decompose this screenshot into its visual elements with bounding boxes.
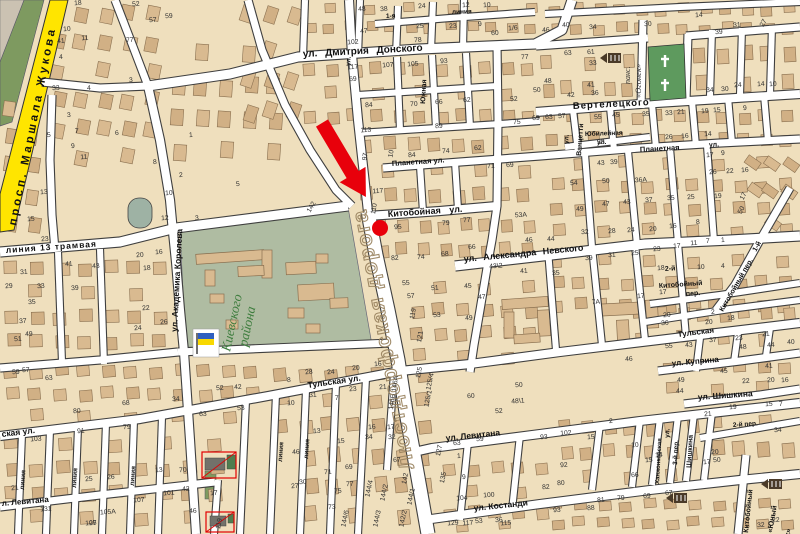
house-number: 10 [287,400,295,408]
building [273,368,287,382]
building [782,74,794,89]
house-number: 35 [552,270,560,278]
street-label: Юбилейная [585,129,623,138]
house-number: 31 [20,269,28,277]
house-number: 43 [685,342,693,350]
house-number: 17 [210,490,218,498]
house-number: 20 [705,319,713,327]
house-number: 44 [676,388,684,396]
building [196,364,209,376]
building [522,280,535,292]
house-number: 117 [372,188,384,196]
building [77,336,90,349]
house-number: 102 [347,39,359,47]
building [600,302,643,316]
map-canvas[interactable]: Люстдорфская дорогапросп. Маршала Жукова… [0,0,800,534]
house-number: 40 [787,339,795,347]
road[interactable] [432,55,436,128]
road[interactable] [692,101,696,146]
building [84,461,98,474]
building [689,500,702,510]
road[interactable] [46,430,50,534]
road[interactable] [100,249,104,364]
building [108,440,122,453]
building [31,312,44,325]
site-building [227,455,236,469]
house-number: 3 [195,215,199,222]
street-label: пер. [686,290,701,298]
house-number: 27 [89,520,97,528]
house-number: 20 [767,377,775,385]
building [427,138,440,151]
house-number: 17 [659,289,667,297]
house-number: 1/6 [508,25,518,33]
road[interactable] [102,423,106,534]
house-number: 33 [589,60,597,68]
building [330,298,348,309]
building [369,61,381,73]
house-number: 21 [379,384,387,392]
house-number: 18 [143,265,151,273]
building [364,5,375,15]
house-number: 52 [132,1,140,9]
building [428,190,441,203]
house-number: 43 [623,199,631,207]
building [122,121,137,137]
house-number: 101 [163,490,175,498]
house-number: 40 [562,22,570,30]
house-number: 67 [393,457,401,465]
house-number: 74 [442,148,450,156]
building [667,520,680,530]
house-number: 19 [701,108,709,116]
street-label: линия [19,470,27,490]
house-number: 12 [161,215,169,223]
house-number: 9 [721,150,725,157]
house-number: 36 [495,517,503,525]
building [199,390,212,402]
house-number: 38 [380,6,388,14]
house-number: 15 [765,401,773,409]
house-number: 17 [637,293,645,301]
building [546,134,558,146]
house-number: 42 [567,92,575,100]
location-marker-dot[interactable] [372,220,388,236]
building [223,411,236,423]
house-number: 49 [25,331,33,339]
road[interactable] [652,104,656,148]
house-number: 13 [313,428,321,436]
house-number: 23 [349,386,357,394]
house-number: 15 [645,457,653,465]
house-number: 25 [416,23,424,31]
house-number: 25 [687,194,695,202]
building [518,165,531,178]
house-number: 32 [388,434,396,442]
building [29,464,43,477]
building [597,517,610,527]
building [472,187,485,200]
house-number: 68 [441,251,449,259]
building [552,178,565,190]
building [100,8,115,24]
road[interactable] [58,252,62,362]
house-number: 45 [720,368,728,376]
house-number: 48 [544,78,552,86]
house-number: 18 [727,315,735,323]
house-number: 8 [696,219,700,226]
house-number: 10 [387,149,395,158]
house-number: 21 [704,411,712,419]
house-number: 46 [542,27,550,35]
road[interactable] [696,338,700,371]
building [74,7,89,23]
building [152,334,165,347]
street-label: панс. [623,66,632,84]
house-number: 104 [456,495,468,503]
house-number: 36 [591,90,599,98]
house-number: 14 [655,452,663,460]
house-number: 105А [100,508,117,516]
building [196,110,210,127]
building [603,444,615,457]
house-number: 49 [465,315,473,323]
house-number: 91 [77,428,85,436]
house-number: 107 [382,62,394,70]
building [372,449,385,465]
building [298,283,335,301]
building [105,260,118,273]
house-number: 50 [713,457,721,465]
building [524,24,535,34]
house-number: 70 [179,467,187,475]
building [5,311,18,324]
building [784,308,796,321]
house-number: 36А [635,177,648,185]
building [96,61,111,77]
building [778,363,791,374]
house-number: 46 [189,508,197,516]
house-number: 26 [709,169,717,177]
house-number: 48 [739,344,747,352]
house-number: 43 [597,160,605,168]
building [25,189,38,205]
house-number: 13 [40,189,48,197]
house-number: 63 [453,440,461,448]
building [616,21,627,31]
house-number: 57 [407,293,415,301]
house-number: 34 [365,434,373,442]
building [238,265,264,276]
building [713,501,726,511]
house-number: 102 [560,430,572,438]
building [134,513,148,526]
building [782,443,795,458]
building [316,254,328,263]
building [604,82,615,96]
house-number: 36 [661,320,669,328]
house-number: 15 [713,107,721,115]
building [735,181,748,193]
building [195,44,209,61]
building [456,303,469,315]
house-number: 62 [474,145,482,153]
house-number: 60 [491,30,499,38]
house-number: 41 [65,261,73,269]
house-number: 57 [22,367,30,375]
building [207,439,221,452]
road[interactable] [764,95,768,141]
house-number: 33 [665,110,673,118]
house-number: 32 [757,522,765,530]
house-number: 26 [160,319,168,327]
house-number: 84 [408,152,416,160]
road[interactable] [420,166,423,212]
house-number: 33 [37,283,45,291]
building [383,136,396,149]
building [30,408,43,420]
house-number: 46 [292,449,300,457]
house-number: 20 [711,449,719,457]
house-number: 9 [743,105,747,112]
house-number: 73 [328,504,336,512]
house-number: 35 [642,111,650,119]
house-number: 49 [677,377,685,385]
house-number: 63 [564,50,572,58]
road[interactable] [158,417,162,534]
building [535,463,548,475]
house-number: 44 [767,342,775,350]
house-number: 49 [576,206,584,214]
house-number: 2 [609,418,613,425]
house-number: 71 [487,163,495,171]
road[interactable] [728,97,732,143]
map-screenshot: Люстдорфская дорогапросп. Маршала Жукова… [0,0,800,534]
house-number: 16 [368,424,376,432]
house-number: 55 [402,280,410,288]
house-number: 93 [440,58,448,66]
house-number: 75 [334,488,342,496]
house-number: 77 [463,217,471,225]
house-number: 39 [71,285,79,293]
building [478,219,490,232]
house-number: 78 [414,37,422,45]
house-number: 47 [478,294,486,302]
street-label: линия [129,466,137,486]
house-number: 43 [92,263,100,271]
building [127,261,140,274]
house-number: 8 [153,159,157,166]
house-number: 25 [85,476,93,484]
house-number: 74 [417,254,425,262]
house-number: 2 [179,172,183,179]
house-number: 53 [433,312,441,320]
road[interactable] [466,53,470,127]
building [520,137,533,150]
building [205,270,215,286]
house-number: 30 [644,21,652,29]
house-number: 16 [155,249,163,257]
house-number: 1 [721,237,725,244]
building [395,242,407,255]
house-number: 27 [291,483,299,491]
road[interactable] [397,57,400,130]
house-number: 88 [587,505,595,513]
house-number: 24 [327,369,335,377]
house-number: 84 [365,102,373,110]
building [130,288,143,301]
house-number: 15 [337,438,345,446]
building [126,387,139,399]
house-number: 77 [126,37,134,45]
building [685,179,698,191]
house-number: 10 [631,442,639,450]
building [210,294,224,303]
house-number: 52 [216,385,224,393]
building [144,37,159,53]
house-number: 34 [706,87,714,95]
street-label: линия [452,8,472,16]
house-number: 23 [449,23,457,31]
building [543,84,554,98]
house-number: 30 [721,86,729,94]
building [102,365,115,377]
house-number: 69 [643,493,651,501]
building [619,502,632,512]
road[interactable] [686,34,688,100]
house-number: 13 [155,467,163,475]
house-number: 30 [299,479,307,487]
house-number: 5 [236,181,240,188]
house-number: 26 [107,474,115,482]
house-number: 15 [587,434,595,442]
building [413,348,426,360]
house-number: 31 [733,22,741,30]
street-label: ул. [664,428,671,438]
house-number: 105 [407,61,419,69]
flag-icon [198,339,214,345]
house-number: 1 [189,132,193,139]
house-number: 63 [199,411,207,419]
house-number: 24 [627,227,635,235]
house-number: 23 [653,246,661,254]
house-number: 22 [142,305,150,313]
building [521,63,533,75]
house-number: 41 [587,82,595,90]
house-number: 20 [136,252,144,260]
house-number: 4 [721,263,725,270]
house-number: 8 [287,377,291,384]
house-number: 18 [74,0,82,7]
house-number: 11 [690,240,698,247]
house-number: 28 [305,369,313,377]
house-number: 69 [349,76,357,84]
house-number: 48\1 [511,398,525,406]
house-number: 63 [45,375,53,383]
building [325,86,337,98]
house-number: 16 [781,377,789,385]
house-number: 50 [533,87,541,95]
house-number: 71 [324,469,332,477]
house-number: 92 [560,462,568,470]
building [622,518,635,528]
house-number: 44 [547,236,555,244]
building [784,47,796,62]
building [30,262,43,275]
building [621,83,632,97]
building [120,147,135,163]
building [658,23,669,33]
house-number: 15 [27,216,35,224]
building [575,297,588,309]
house-number: 47 [360,28,368,36]
building [79,390,92,402]
building [56,460,70,473]
building [220,141,234,158]
house-number: 23 [41,236,49,244]
house-number: 17 [387,424,395,432]
house-number: 10 [63,26,71,34]
building [217,111,231,128]
building [73,92,88,108]
house-number: 59 [12,369,20,377]
house-number: 100 [483,492,495,500]
building [502,62,514,74]
building [78,264,91,277]
house-number: 35 [667,195,675,203]
building [479,109,491,121]
building [327,64,339,76]
building [403,2,414,12]
building [436,64,448,76]
building [516,189,529,202]
house-number: 69 [506,162,514,170]
street-label: линия [303,439,311,459]
building [303,63,315,75]
house-number: 10 [697,264,705,272]
building [643,255,656,267]
building [435,328,448,340]
house-number: 20 [649,226,657,234]
house-number: 33 [52,85,60,93]
house-number: 10 [483,2,491,10]
building [99,93,114,109]
house-number: 28 [608,228,616,236]
house-number: 47 [602,201,610,209]
house-number: 69 [532,115,540,123]
house-number: 79 [123,424,131,432]
house-number: 53 [475,518,483,526]
road[interactable] [431,2,433,50]
building [98,35,113,51]
building [739,113,751,125]
road[interactable] [455,162,458,209]
house-number: 7 [779,401,783,408]
building [524,221,536,234]
house-number: 81 [597,497,605,505]
building [404,189,417,202]
building [53,389,66,401]
house-number: 70 [410,101,418,109]
building [732,441,745,456]
building [369,395,383,409]
building [153,262,166,275]
building [242,46,256,63]
house-number: 29 [5,283,13,291]
building [58,438,72,451]
building [686,225,699,237]
house-number: 17 [703,459,711,467]
